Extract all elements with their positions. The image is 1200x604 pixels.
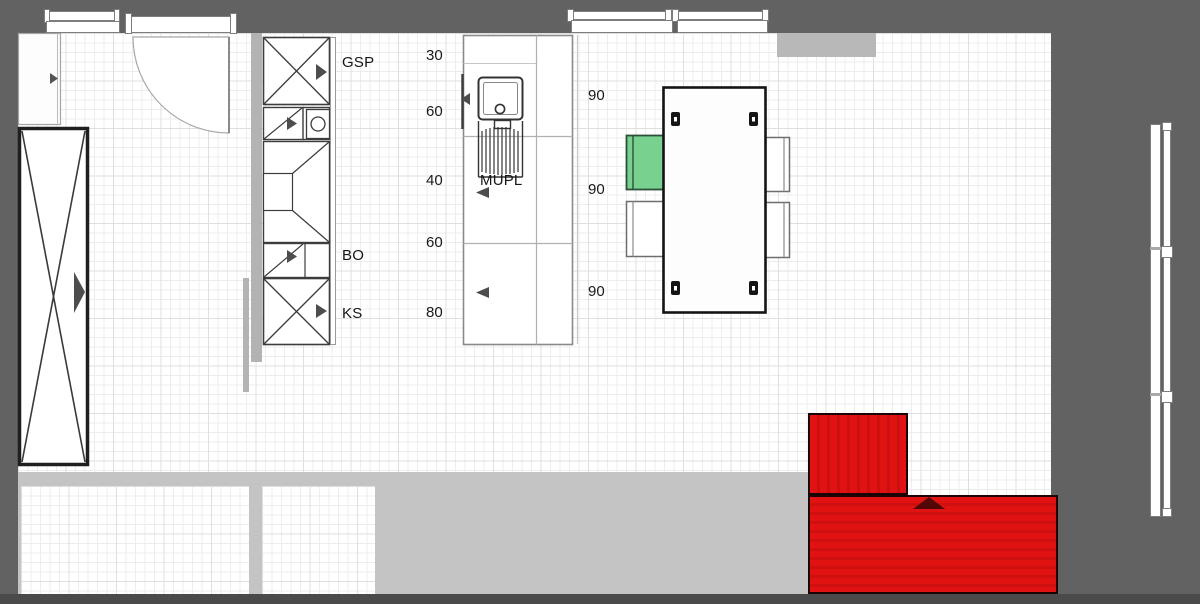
label-ks: KS	[342, 305, 362, 322]
countertop-edge	[331, 38, 336, 345]
cabinet-bo[interactable]	[264, 244, 330, 278]
sink-drain-icon	[495, 104, 504, 113]
table-leg	[749, 112, 758, 126]
cabinet-ks[interactable]	[264, 279, 330, 345]
chair-white-right-lower[interactable]	[764, 203, 790, 258]
red-element-marker-icon	[913, 497, 945, 509]
dining-table[interactable]	[664, 88, 766, 313]
table-leg	[671, 281, 680, 295]
dim-80: 80	[426, 304, 443, 321]
label-gsp: GSP	[342, 54, 374, 71]
red-element-upper[interactable]	[808, 413, 908, 495]
dim-60a: 60	[426, 103, 443, 120]
table-leg	[671, 112, 680, 126]
label-bo: BO	[342, 247, 364, 264]
dim-90a: 90	[588, 87, 605, 104]
kitchen-island[interactable]	[461, 35, 578, 345]
chair-green[interactable]	[627, 136, 665, 190]
cabinet-top-left[interactable]	[19, 34, 61, 125]
red-element-lower[interactable]	[808, 495, 1058, 594]
cabinet-sink-base[interactable]	[264, 108, 330, 140]
chair-white-left[interactable]	[627, 202, 665, 257]
tall-cabinet-left[interactable]	[20, 129, 88, 465]
floor-plan-canvas: GSP BO KS MUPL 30 60 40 60 80 90 90 90	[0, 0, 1200, 604]
chair-white-right-upper[interactable]	[764, 138, 790, 192]
cabinet-gsp[interactable]	[264, 38, 330, 105]
dim-90c: 90	[588, 283, 605, 300]
dim-60b: 60	[426, 234, 443, 251]
dim-40: 40	[426, 172, 443, 189]
dim-90b: 90	[588, 181, 605, 198]
label-mupl: MUPL	[480, 172, 522, 189]
cabinet-corner-unit[interactable]	[264, 142, 330, 243]
dim-30: 30	[426, 47, 443, 64]
table-leg	[749, 281, 758, 295]
sink-circle-icon	[311, 117, 325, 131]
